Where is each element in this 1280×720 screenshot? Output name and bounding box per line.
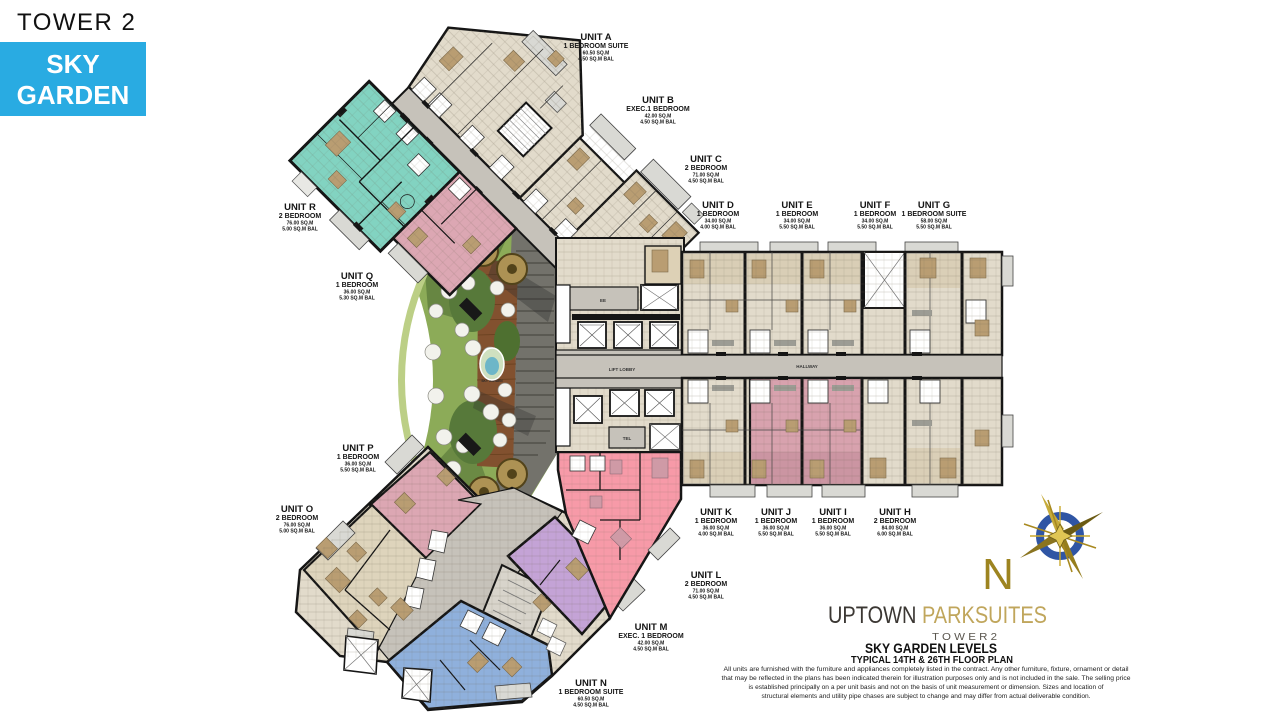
svg-text:UNIT A: UNIT A [580, 32, 611, 43]
svg-text:2 BEDROOM: 2 BEDROOM [279, 213, 322, 220]
svg-text:UNIT O: UNIT O [281, 504, 313, 515]
svg-text:UNIT Q: UNIT Q [341, 271, 373, 282]
svg-text:TYPICAL 14TH & 26TH FLOOR PLAN: TYPICAL 14TH & 26TH FLOOR PLAN [851, 654, 1013, 666]
svg-text:is established principally on: is established principally on a per unit… [749, 684, 1104, 691]
svg-text:GARDEN: GARDEN [17, 80, 130, 110]
svg-text:5.50 SQ.M BAL: 5.50 SQ.M BAL [758, 532, 794, 538]
svg-text:TOWER 2: TOWER 2 [17, 9, 136, 36]
svg-text:5.00 SQ.M BAL: 5.00 SQ.M BAL [279, 529, 315, 535]
svg-text:5.50 SQ.M BAL: 5.50 SQ.M BAL [815, 532, 851, 538]
svg-text:2 BEDROOM: 2 BEDROOM [874, 518, 917, 525]
svg-text:EXEC.1 BEDROOM: EXEC.1 BEDROOM [626, 106, 690, 113]
svg-text:SKY: SKY [46, 49, 99, 79]
svg-text:UPTOWN PARKSUITES: UPTOWN PARKSUITES [828, 602, 1047, 629]
svg-text:EE: EE [600, 298, 606, 303]
svg-text:UNIT P: UNIT P [342, 443, 374, 454]
svg-text:N: N [982, 550, 1014, 599]
svg-text:structural elements and utilit: structural elements and utility pipe cha… [762, 693, 1091, 700]
svg-text:All units are furnished with t: All units are furnished with the furnitu… [724, 666, 1130, 673]
svg-text:4.00 SQ.M BAL: 4.00 SQ.M BAL [700, 225, 736, 231]
svg-text:LIFT LOBBY: LIFT LOBBY [609, 367, 636, 372]
svg-text:UNIT E: UNIT E [781, 200, 812, 211]
svg-text:4.00 SQ.M BAL: 4.00 SQ.M BAL [698, 532, 734, 538]
svg-text:EXEC. 1 BEDROOM: EXEC. 1 BEDROOM [618, 633, 684, 640]
svg-text:2 BEDROOM: 2 BEDROOM [276, 515, 319, 522]
svg-text:1 BEDROOM: 1 BEDROOM [812, 518, 855, 525]
svg-text:TEL: TEL [623, 436, 632, 441]
svg-text:UNIT I: UNIT I [819, 507, 846, 518]
svg-text:4.50 SQ.M BAL: 4.50 SQ.M BAL [633, 647, 669, 653]
svg-text:1 BEDROOM: 1 BEDROOM [697, 211, 740, 218]
svg-text:4.50 SQ.M BAL: 4.50 SQ.M BAL [688, 595, 724, 601]
svg-text:4.50 SQ.M BAL: 4.50 SQ.M BAL [573, 703, 609, 709]
svg-text:1 BEDROOM: 1 BEDROOM [755, 518, 798, 525]
svg-text:UNIT H: UNIT H [879, 507, 911, 518]
svg-text:6.00 SQ.M BAL: 6.00 SQ.M BAL [877, 532, 913, 538]
svg-text:1 BEDROOM SUITE: 1 BEDROOM SUITE [902, 211, 967, 218]
svg-text:UNIT C: UNIT C [690, 154, 722, 165]
svg-text:UNIT B: UNIT B [642, 95, 674, 106]
svg-text:1 BEDROOM SUITE: 1 BEDROOM SUITE [564, 43, 629, 50]
svg-text:UNIT G: UNIT G [918, 200, 950, 211]
svg-text:5.50 SQ.M BAL: 5.50 SQ.M BAL [857, 225, 893, 231]
svg-text:UNIT N: UNIT N [575, 678, 607, 689]
svg-text:5.00 SQ.M BAL: 5.00 SQ.M BAL [282, 227, 318, 233]
svg-text:5.50 SQ.M BAL: 5.50 SQ.M BAL [916, 225, 952, 231]
svg-text:UNIT D: UNIT D [702, 200, 734, 211]
svg-text:1 BEDROOM: 1 BEDROOM [695, 518, 738, 525]
svg-text:4.50 SQ.M BAL: 4.50 SQ.M BAL [578, 57, 614, 63]
svg-text:1 BEDROOM: 1 BEDROOM [337, 454, 380, 461]
svg-text:5.50 SQ.M BAL: 5.50 SQ.M BAL [340, 468, 376, 474]
svg-text:5.50 SQ.M BAL: 5.50 SQ.M BAL [779, 225, 815, 231]
svg-text:UNIT K: UNIT K [700, 507, 732, 518]
svg-text:UNIT L: UNIT L [691, 570, 722, 581]
svg-text:HALLWAY: HALLWAY [796, 364, 818, 369]
svg-text:UNIT M: UNIT M [635, 622, 668, 633]
svg-text:UNIT J: UNIT J [761, 507, 791, 518]
svg-text:5.30 SQ.M BAL: 5.30 SQ.M BAL [339, 296, 375, 302]
svg-text:2 BEDROOM: 2 BEDROOM [685, 581, 728, 588]
svg-text:1 BEDROOM SUITE: 1 BEDROOM SUITE [559, 689, 624, 696]
svg-text:1 BEDROOM: 1 BEDROOM [336, 282, 379, 289]
svg-text:UNIT R: UNIT R [284, 202, 316, 213]
svg-text:4.50 SQ.M BAL: 4.50 SQ.M BAL [688, 179, 724, 185]
svg-text:that may be reflected in the p: that may be reflected in the plans has b… [722, 675, 1131, 682]
svg-text:1 BEDROOM: 1 BEDROOM [776, 211, 819, 218]
svg-text:UNIT F: UNIT F [860, 200, 891, 211]
svg-text:1 BEDROOM: 1 BEDROOM [854, 211, 897, 218]
svg-text:2 BEDROOM: 2 BEDROOM [685, 165, 728, 172]
svg-text:4.50 SQ.M BAL: 4.50 SQ.M BAL [640, 120, 676, 126]
